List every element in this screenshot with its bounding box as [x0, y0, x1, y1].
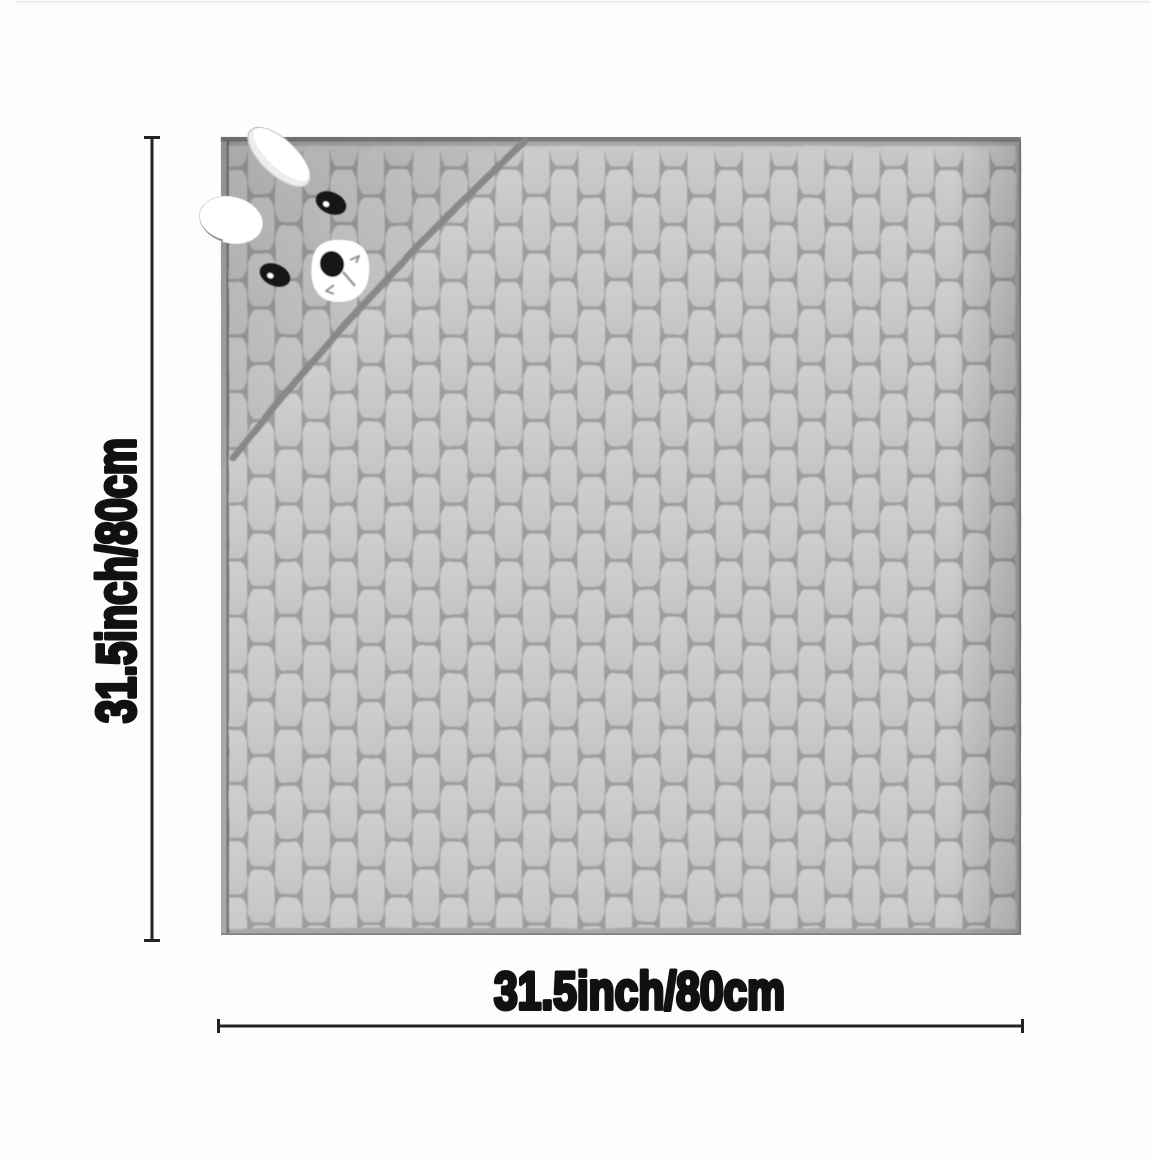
svg-text:31.5inch/80cm: 31.5inch/80cm	[85, 438, 147, 723]
svg-text:31.5inch/80cm: 31.5inch/80cm	[494, 962, 785, 1021]
